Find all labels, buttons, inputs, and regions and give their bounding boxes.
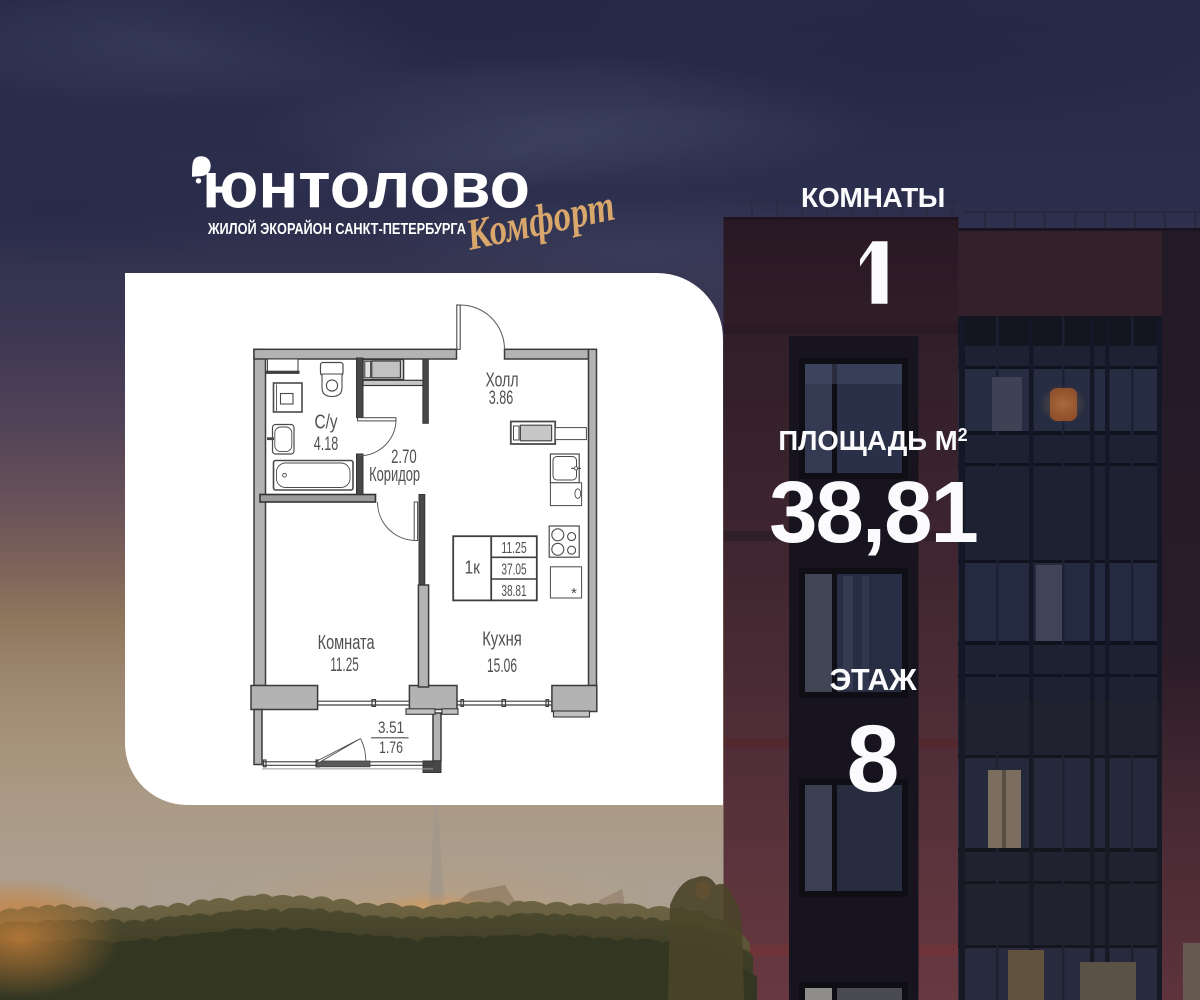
- svg-text:11.25: 11.25: [501, 540, 526, 557]
- svg-text:15.06: 15.06: [487, 656, 517, 677]
- svg-text:Комната: Комната: [318, 632, 376, 654]
- svg-text:37.05: 37.05: [501, 561, 526, 578]
- svg-text:ЖИЛОЙ ЭКОРАЙОН САНКТ-ПЕТЕРБУРГ: ЖИЛОЙ ЭКОРАЙОН САНКТ-ПЕТЕРБУРГА: [207, 220, 466, 238]
- svg-text:11.25: 11.25: [330, 655, 359, 676]
- svg-text:3.51: 3.51: [378, 719, 404, 737]
- svg-text:4.18: 4.18: [314, 434, 339, 455]
- svg-text:38.81: 38.81: [501, 583, 526, 600]
- svg-text:1.76: 1.76: [379, 739, 403, 757]
- svg-text:3.86: 3.86: [489, 388, 514, 409]
- svg-text:Кухня: Кухня: [482, 629, 522, 651]
- svg-text:*: *: [571, 585, 577, 602]
- svg-text:Коридор: Коридор: [369, 464, 420, 486]
- svg-text:С/у: С/у: [315, 412, 338, 434]
- svg-text:1к: 1к: [464, 558, 480, 578]
